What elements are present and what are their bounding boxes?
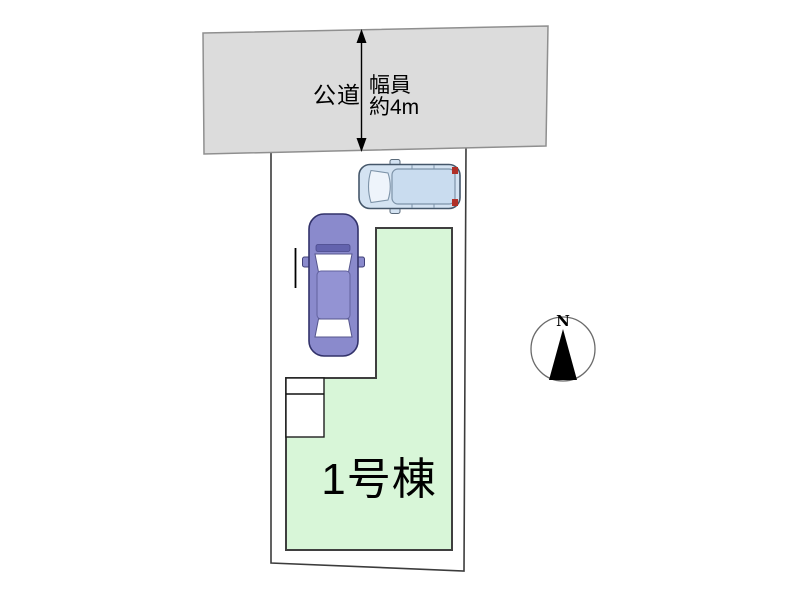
road-width-note: 幅員 約4m — [369, 75, 419, 118]
building-label: 1号棟 — [296, 457, 462, 503]
car-purple-icon — [303, 214, 365, 356]
site-plan-canvas: 公道 幅員 約4m 1号棟 N — [0, 0, 800, 600]
road-width-note-line2: 約4m — [369, 97, 419, 119]
compass-north-label: N — [553, 314, 573, 330]
road-label: 公道 — [313, 84, 361, 108]
road-width-note-line1: 幅員 — [369, 75, 419, 97]
car-lightblue-icon — [359, 160, 460, 214]
building-entrance-notch — [286, 378, 324, 437]
